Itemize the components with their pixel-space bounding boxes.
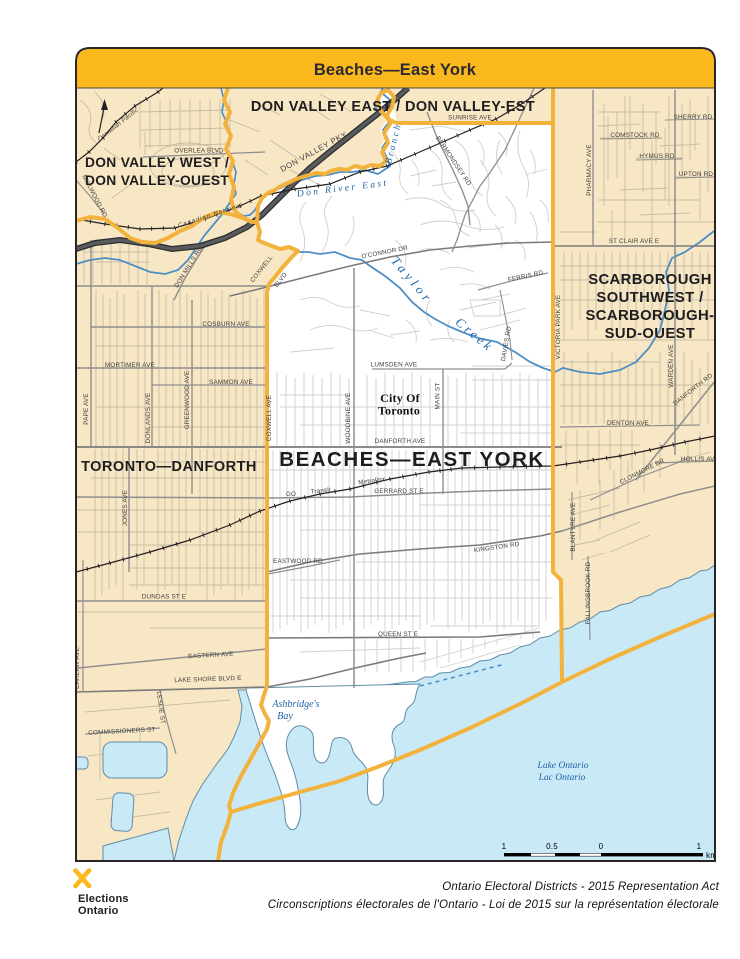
svg-text:Lake Ontario: Lake Ontario <box>537 761 589 771</box>
svg-text:OVERLEA BLVD: OVERLEA BLVD <box>174 148 224 155</box>
svg-text:HOLLIS AVE: HOLLIS AVE <box>681 456 719 463</box>
svg-text:DON VALLEY-OUEST: DON VALLEY-OUEST <box>85 173 229 188</box>
svg-text:DENTON AVE: DENTON AVE <box>607 420 649 427</box>
svg-text:Toronto: Toronto <box>378 404 420 418</box>
svg-text:JONES AVE: JONES AVE <box>122 490 129 526</box>
svg-text:DON VALLEY EAST / DON VALLEY-E: DON VALLEY EAST / DON VALLEY-EST <box>251 99 535 115</box>
svg-text:COXWELL AVE: COXWELL AVE <box>266 395 273 441</box>
svg-text:BEACHES—EAST YORK: BEACHES—EAST YORK <box>279 448 544 471</box>
svg-text:GO: GO <box>286 491 296 498</box>
svg-text:Ontario Electoral Districts -: Ontario Electoral Districts - 2015 Repre… <box>442 881 719 893</box>
svg-text:ST CLAIR AVE E: ST CLAIR AVE E <box>609 238 660 245</box>
svg-text:TORONTO—DANFORTH: TORONTO—DANFORTH <box>81 459 257 475</box>
svg-text:Lac Ontario: Lac Ontario <box>538 773 586 783</box>
svg-text:Ontario: Ontario <box>78 905 119 917</box>
svg-text:SOUTHWEST /: SOUTHWEST / <box>596 290 703 306</box>
svg-text:FALLINGBROOK RD: FALLINGBROOK RD <box>585 562 592 625</box>
svg-text:0: 0 <box>599 842 604 851</box>
svg-text:HYMUS RD: HYMUS RD <box>639 153 674 160</box>
svg-text:SCARBOROUGH: SCARBOROUGH <box>588 272 712 288</box>
svg-text:SUD-OUEST: SUD-OUEST <box>605 326 696 342</box>
svg-text:DON VALLEY WEST /: DON VALLEY WEST / <box>85 155 229 170</box>
svg-text:GREENWOOD AVE: GREENWOOD AVE <box>184 371 191 430</box>
svg-text:Beaches—East York: Beaches—East York <box>314 61 477 79</box>
svg-text:WOODBINE AVE: WOODBINE AVE <box>345 393 352 444</box>
svg-text:1: 1 <box>697 842 702 851</box>
svg-text:PAPE AVE: PAPE AVE <box>83 393 90 424</box>
svg-text:SHERRY RD: SHERRY RD <box>674 114 713 121</box>
svg-text:COMSTOCK RD: COMSTOCK RD <box>610 132 660 139</box>
svg-text:QUEEN ST E: QUEEN ST E <box>378 631 418 638</box>
svg-text:EASTWOOD RD: EASTWOOD RD <box>273 558 323 565</box>
svg-text:Elections: Elections <box>78 893 129 905</box>
svg-text:DUNDAS ST E: DUNDAS ST E <box>142 594 186 601</box>
svg-text:MAIN ST: MAIN ST <box>435 383 442 410</box>
svg-text:DONLANDS AVE: DONLANDS AVE <box>145 393 152 444</box>
svg-text:SUNRISE AVE: SUNRISE AVE <box>448 115 492 122</box>
svg-text:Bay: Bay <box>277 711 293 722</box>
svg-text:LUMSDEN AVE: LUMSDEN AVE <box>371 362 418 369</box>
svg-text:SCARBOROUGH-: SCARBOROUGH- <box>586 308 715 324</box>
svg-text:Circonscriptions électorales d: Circonscriptions électorales de l'Ontari… <box>268 899 719 911</box>
svg-text:BLANTYRE AVE: BLANTYRE AVE <box>570 502 577 551</box>
svg-text:VICTORIA PARK AVE: VICTORIA PARK AVE <box>555 295 562 360</box>
svg-text:GERRARD ST E: GERRARD ST E <box>374 488 424 495</box>
svg-text:COSBURN AVE: COSBURN AVE <box>202 321 249 328</box>
svg-text:WARDEN AVE: WARDEN AVE <box>668 344 675 387</box>
svg-text:PHARMACY AVE: PHARMACY AVE <box>586 144 593 196</box>
svg-text:DANFORTH AVE: DANFORTH AVE <box>375 438 426 445</box>
svg-text:UPTON RD: UPTON RD <box>679 171 714 178</box>
svg-text:Ashbridge's: Ashbridge's <box>271 699 319 710</box>
svg-text:MORTIMER AVE: MORTIMER AVE <box>105 362 155 369</box>
svg-text:SAMMON AVE: SAMMON AVE <box>209 379 253 386</box>
svg-text:0.5: 0.5 <box>546 842 558 851</box>
svg-text:1: 1 <box>502 842 507 851</box>
